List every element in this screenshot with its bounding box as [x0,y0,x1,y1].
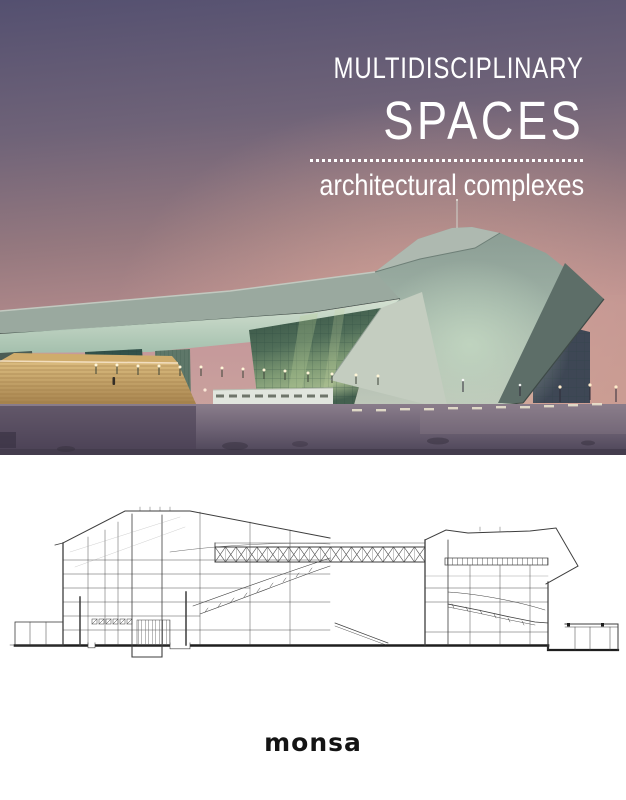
hatched-floor-boxes [92,619,132,624]
book-cover: MULTIDISCIPLINARY SPACES architectural c… [0,0,626,800]
left-annex [10,622,63,645]
publisher-logo: monsa [0,728,626,757]
title-line-1: MULTIDISCIPLINARY [334,54,584,84]
right-low-wing [565,623,618,650]
ground-line [15,643,618,657]
timber-steps [0,353,200,408]
left-theatre-section [55,507,330,645]
person-on-steps [113,377,116,385]
truss-bridge [215,543,425,562]
dotted-divider [310,159,584,162]
title-block: MULTIDISCIPLINARY SPACES architectural c… [269,54,584,201]
basement-colonnade [137,620,170,645]
right-hall-section [425,527,578,649]
building-section-illustration [0,492,626,677]
title-line-2: SPACES [383,94,584,148]
subtitle: architectural complexes [319,171,584,201]
foreground-plaza [0,404,626,455]
publisher-logo-monsa: monsa [264,728,362,757]
section-drawing [0,492,626,677]
entry-ramp [335,623,388,645]
